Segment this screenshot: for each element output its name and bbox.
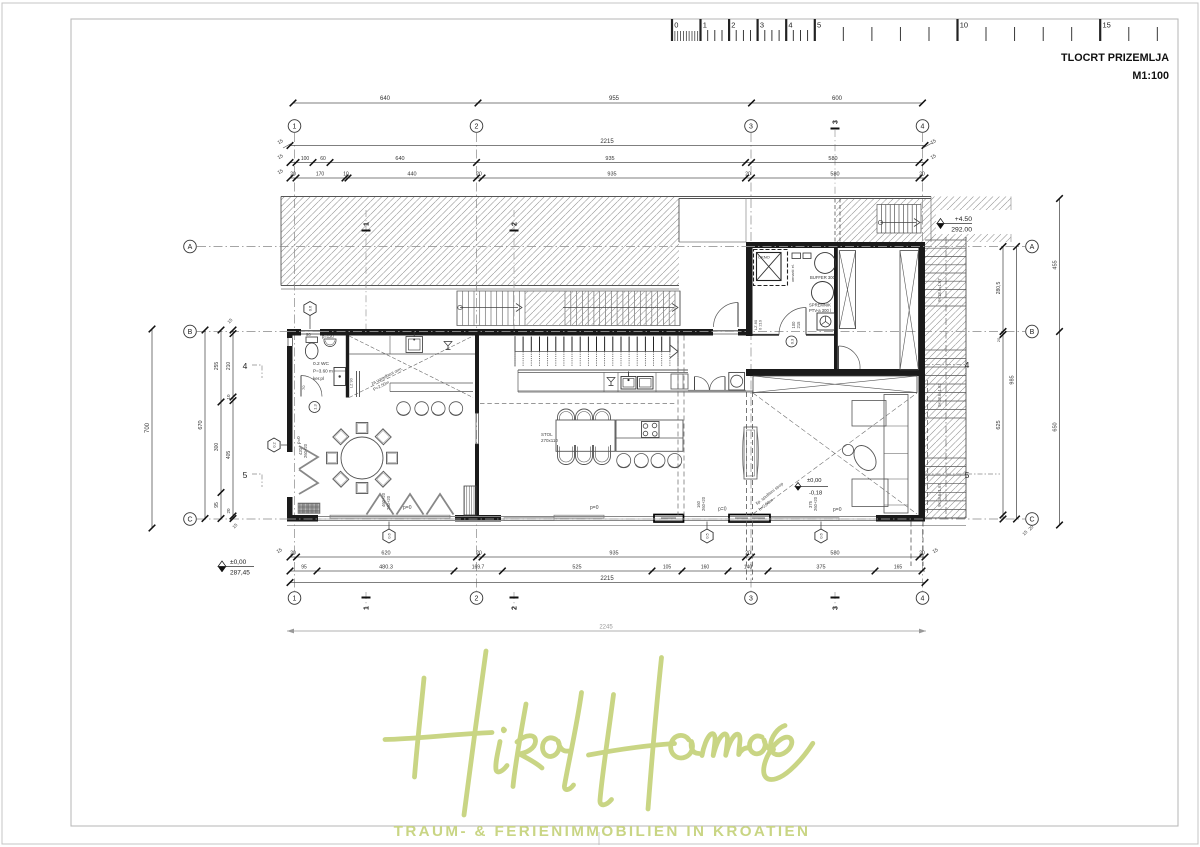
svg-text:C: C bbox=[187, 517, 192, 524]
svg-text:20: 20 bbox=[290, 551, 296, 557]
svg-text:4: 4 bbox=[965, 360, 970, 370]
svg-text:1.3: 1.3 bbox=[312, 403, 317, 409]
svg-text:TRAUM- & FERIENIMMOBILIEN IN K: TRAUM- & FERIENIMMOBILIEN IN KROATIEN bbox=[394, 823, 811, 840]
svg-text:3: 3 bbox=[833, 120, 840, 124]
svg-text:9×18.6=1.67: 9×18.6=1.67 bbox=[937, 483, 942, 507]
svg-text:1: 1 bbox=[364, 222, 371, 226]
svg-text:0.2: 0.2 bbox=[272, 441, 277, 447]
svg-text:SPREMNIK: SPREMNIK bbox=[809, 303, 831, 308]
svg-text:9×18.6=1.67: 9×18.6=1.67 bbox=[937, 278, 942, 302]
svg-text:620: 620 bbox=[381, 551, 390, 557]
svg-text:0.3: 0.3 bbox=[789, 338, 794, 344]
svg-text:3: 3 bbox=[749, 596, 753, 603]
svg-text:100: 100 bbox=[301, 156, 310, 162]
svg-text:60: 60 bbox=[320, 156, 326, 162]
svg-text:p=0: p=0 bbox=[833, 507, 842, 513]
svg-text:2: 2 bbox=[475, 124, 479, 131]
svg-text:4: 4 bbox=[921, 596, 925, 603]
svg-text:70: 70 bbox=[301, 385, 306, 390]
svg-text:0.2 WC: 0.2 WC bbox=[313, 361, 330, 367]
svg-text:270x110: 270x110 bbox=[541, 438, 558, 443]
svg-text:280,5: 280,5 bbox=[996, 282, 1002, 295]
svg-text:A: A bbox=[188, 244, 193, 251]
svg-text:STOL: STOL bbox=[541, 432, 553, 437]
svg-text:OKNO: OKNO bbox=[758, 255, 770, 260]
svg-text:p=0: p=0 bbox=[296, 436, 301, 444]
svg-text:2: 2 bbox=[512, 606, 519, 610]
svg-text:2215: 2215 bbox=[600, 139, 614, 145]
svg-text:-0,18: -0,18 bbox=[809, 491, 822, 497]
svg-text:20: 20 bbox=[476, 172, 482, 178]
svg-text:P=3.60 m: P=3.60 m bbox=[313, 369, 333, 374]
svg-text:20: 20 bbox=[476, 551, 482, 557]
svg-text:p=0: p=0 bbox=[718, 507, 727, 513]
svg-text:260+20: 260+20 bbox=[701, 496, 706, 511]
svg-text:ormarić el.: ormarić el. bbox=[791, 264, 795, 282]
svg-text:+4.50: +4.50 bbox=[955, 216, 972, 223]
svg-text:2215: 2215 bbox=[600, 576, 614, 582]
svg-text:10: 10 bbox=[343, 172, 349, 178]
svg-text:405: 405 bbox=[226, 451, 232, 460]
svg-text:20: 20 bbox=[996, 337, 1001, 342]
svg-text:20: 20 bbox=[290, 172, 296, 178]
svg-text:4: 4 bbox=[243, 361, 248, 371]
svg-text:287,45: 287,45 bbox=[230, 570, 250, 577]
svg-text:p=0: p=0 bbox=[403, 505, 412, 511]
svg-text:140: 140 bbox=[744, 565, 753, 571]
svg-text:169.7: 169.7 bbox=[472, 565, 485, 571]
svg-text:2245: 2245 bbox=[599, 625, 613, 631]
svg-text:0.6: 0.6 bbox=[387, 532, 392, 538]
svg-text:300: 300 bbox=[214, 443, 220, 452]
svg-text:580: 580 bbox=[830, 551, 839, 557]
svg-text:M1:100: M1:100 bbox=[1132, 70, 1169, 82]
svg-text:10: 10 bbox=[226, 394, 231, 400]
svg-text:210: 210 bbox=[226, 362, 232, 371]
svg-text:5: 5 bbox=[817, 21, 821, 30]
svg-text:580: 580 bbox=[830, 172, 839, 178]
svg-text:95: 95 bbox=[214, 502, 220, 508]
svg-text:292.00: 292.00 bbox=[951, 227, 972, 234]
svg-text:260+20: 260+20 bbox=[813, 496, 818, 511]
svg-text:PTV-a 300 l: PTV-a 300 l bbox=[809, 308, 831, 313]
svg-text:1: 1 bbox=[703, 21, 707, 30]
svg-text:B: B bbox=[1030, 329, 1035, 336]
svg-text:0.6: 0.6 bbox=[308, 305, 313, 311]
svg-text:0 210: 0 210 bbox=[758, 319, 763, 330]
svg-text:160: 160 bbox=[701, 565, 710, 571]
svg-text:A: A bbox=[1030, 244, 1035, 251]
svg-text:640: 640 bbox=[395, 156, 404, 162]
svg-text:2: 2 bbox=[512, 222, 519, 226]
svg-text:±0,00: ±0,00 bbox=[230, 559, 247, 566]
svg-text:BUFFER 300 l: BUFFER 300 l bbox=[810, 275, 837, 280]
svg-text:20: 20 bbox=[919, 551, 925, 557]
svg-text:TLOCRT PRIZEMLJA: TLOCRT PRIZEMLJA bbox=[1061, 52, 1169, 64]
svg-text:4: 4 bbox=[921, 124, 925, 131]
svg-text:670: 670 bbox=[198, 420, 204, 429]
svg-text:5: 5 bbox=[243, 470, 248, 480]
svg-text:LZ 90: LZ 90 bbox=[350, 378, 354, 388]
svg-text:0: 0 bbox=[674, 21, 678, 30]
svg-text:985: 985 bbox=[1010, 375, 1016, 384]
svg-text:15: 15 bbox=[1102, 21, 1110, 30]
svg-text:1: 1 bbox=[293, 596, 297, 603]
svg-text:90: 90 bbox=[306, 332, 311, 337]
svg-text:935: 935 bbox=[609, 551, 618, 557]
svg-text:255: 255 bbox=[214, 362, 220, 371]
svg-text:0.5: 0.5 bbox=[705, 532, 710, 538]
svg-text:1: 1 bbox=[293, 124, 297, 131]
svg-text:525: 525 bbox=[572, 565, 581, 571]
svg-text:3: 3 bbox=[833, 606, 840, 610]
svg-text:260+20: 260+20 bbox=[386, 495, 391, 510]
svg-text:375: 375 bbox=[816, 565, 825, 571]
svg-text:2: 2 bbox=[731, 21, 735, 30]
svg-text:640: 640 bbox=[380, 96, 391, 102]
svg-text:0.6: 0.6 bbox=[819, 532, 824, 538]
svg-text:935: 935 bbox=[607, 172, 616, 178]
svg-text:260+20: 260+20 bbox=[303, 443, 308, 458]
svg-text:105: 105 bbox=[663, 565, 672, 571]
svg-text:20: 20 bbox=[919, 172, 925, 178]
svg-text:C: C bbox=[1029, 517, 1034, 524]
svg-text:215: 215 bbox=[796, 321, 801, 329]
svg-text:955: 955 bbox=[609, 96, 620, 102]
svg-text:440: 440 bbox=[407, 172, 416, 178]
svg-text:4: 4 bbox=[788, 21, 792, 30]
svg-text:600: 600 bbox=[832, 96, 843, 102]
svg-text:165: 165 bbox=[894, 565, 903, 571]
svg-text:1: 1 bbox=[364, 606, 371, 610]
svg-text:580: 580 bbox=[828, 156, 837, 162]
svg-text:5: 5 bbox=[965, 470, 970, 480]
svg-text:480.3: 480.3 bbox=[379, 565, 393, 571]
svg-text:3: 3 bbox=[749, 124, 753, 131]
svg-text:B: B bbox=[188, 329, 193, 336]
svg-text:170: 170 bbox=[316, 172, 325, 178]
svg-text:9×18.6=1.67: 9×18.6=1.67 bbox=[937, 383, 942, 407]
svg-text:3: 3 bbox=[760, 21, 764, 30]
svg-text:10: 10 bbox=[960, 21, 968, 30]
svg-text:935: 935 bbox=[605, 156, 614, 162]
svg-text:650: 650 bbox=[1053, 422, 1059, 431]
svg-text:p=0: p=0 bbox=[590, 505, 599, 511]
svg-text:p=120: p=120 bbox=[322, 334, 334, 339]
svg-text:20: 20 bbox=[745, 172, 751, 178]
svg-text:ker.pl: ker.pl bbox=[313, 376, 324, 381]
svg-text:700: 700 bbox=[145, 422, 151, 433]
svg-text:625: 625 bbox=[996, 420, 1002, 429]
svg-text:±0,00: ±0,00 bbox=[807, 478, 821, 484]
svg-text:20: 20 bbox=[745, 551, 751, 557]
svg-text:455: 455 bbox=[1053, 260, 1059, 269]
svg-text:95: 95 bbox=[301, 565, 307, 571]
svg-text:2: 2 bbox=[475, 596, 479, 603]
svg-text:20: 20 bbox=[226, 508, 231, 514]
